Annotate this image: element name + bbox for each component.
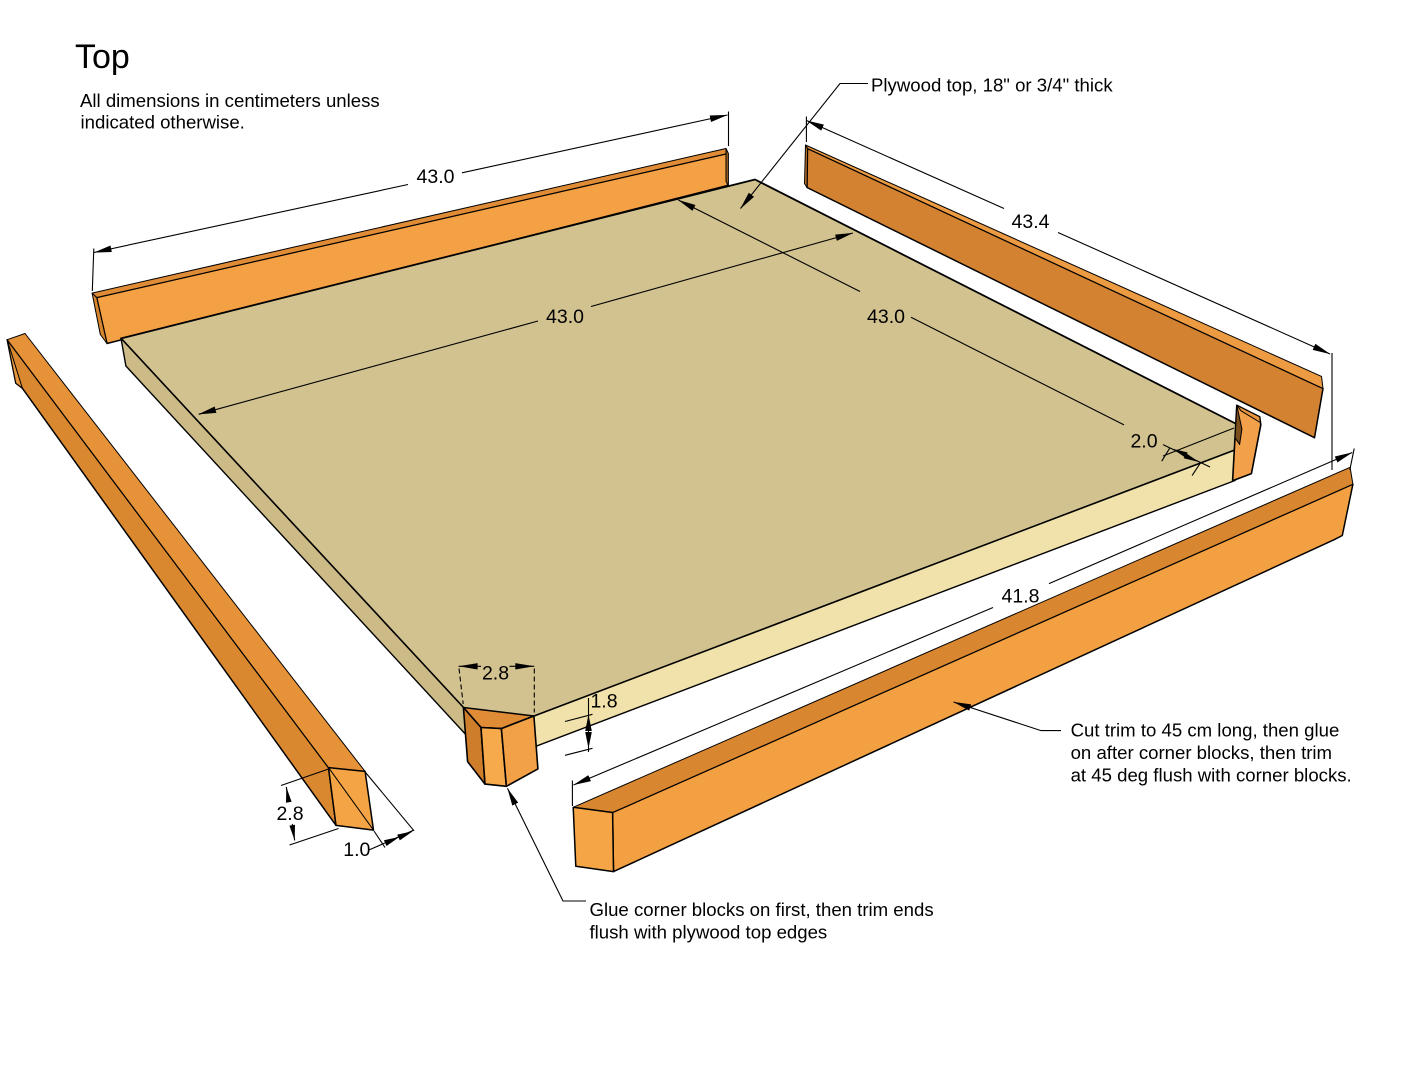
svg-text:43.4: 43.4 <box>1012 211 1050 233</box>
svg-text:Top: Top <box>75 38 130 76</box>
svg-text:1.0: 1.0 <box>343 839 370 861</box>
svg-text:Cut trim to 45 cm long, then g: Cut trim to 45 cm long, then glue on aft… <box>1071 720 1352 786</box>
svg-text:43.0: 43.0 <box>867 306 905 328</box>
svg-text:2.8: 2.8 <box>482 663 509 685</box>
svg-text:1.8: 1.8 <box>590 691 617 713</box>
svg-text:2.8: 2.8 <box>276 803 303 825</box>
svg-text:All dimensions in centimeters: All dimensions in centimeters unless <box>80 90 380 111</box>
svg-text:41.8: 41.8 <box>1002 586 1040 608</box>
svg-text:2.0: 2.0 <box>1130 431 1157 453</box>
svg-text:43.0: 43.0 <box>546 306 584 328</box>
svg-text:indicated otherwise.: indicated otherwise. <box>81 112 245 133</box>
svg-text:Plywood top, 18" or 3/4" thick: Plywood top, 18" or 3/4" thick <box>871 75 1113 96</box>
svg-text:43.0: 43.0 <box>417 166 455 188</box>
